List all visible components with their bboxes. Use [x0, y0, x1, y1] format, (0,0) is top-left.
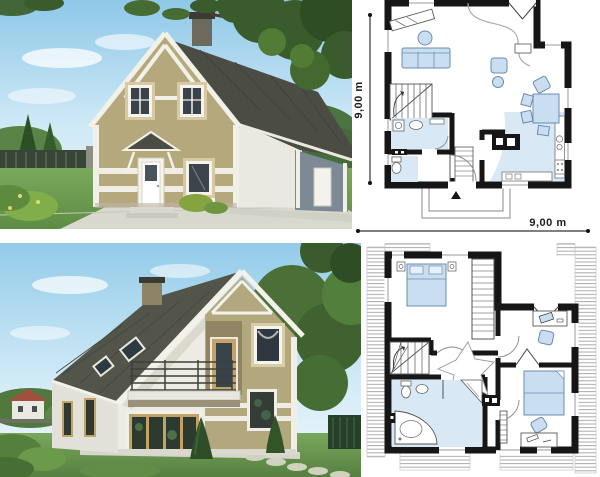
- staircase: [390, 84, 432, 120]
- chair: [521, 110, 533, 123]
- distant-house: [12, 401, 44, 419]
- ground-floor-glazing: [126, 411, 202, 455]
- ground-floor-plan-svg: 9,00 m 9,00 m: [352, 0, 600, 239]
- wardrobe: [472, 259, 494, 339]
- pouf: [493, 77, 504, 88]
- dimension-vertical: 9,00 m: [353, 13, 372, 185]
- washing-machine: [393, 120, 404, 131]
- photo-house-garden: [0, 243, 361, 477]
- annex-door: [314, 168, 331, 206]
- porch-post: [296, 150, 300, 208]
- front-door: [138, 158, 164, 207]
- kitchen-sink: [556, 136, 562, 142]
- door-steps: [130, 207, 174, 213]
- desk: [521, 433, 557, 447]
- photo-house-front-svg: [0, 0, 352, 229]
- balcony-door: [210, 337, 238, 393]
- facade-stripe: [95, 186, 237, 192]
- upper-floor-plan: [361, 243, 600, 477]
- house-project-collage: 9,00 m 9,00 m: [0, 0, 600, 477]
- bathroom: [391, 118, 448, 149]
- pillow: [429, 266, 442, 274]
- coffee-table: [418, 31, 432, 45]
- upper-window-left: [125, 82, 155, 120]
- toilet: [402, 386, 411, 398]
- dimension-horizontal: 9,00 m: [356, 217, 590, 233]
- radiator: [392, 149, 407, 155]
- sink: [416, 385, 428, 394]
- porch-post: [343, 163, 347, 212]
- wardrobe: [500, 411, 507, 443]
- dimension-label-width: 9,00 m: [529, 217, 566, 229]
- chair: [537, 125, 549, 135]
- desk-chair: [538, 330, 554, 346]
- photo-house-front: [0, 0, 352, 229]
- facade-stripe: [95, 168, 237, 174]
- dining-table: [533, 94, 559, 123]
- chair: [521, 94, 534, 107]
- dimension-label-depth: 9,00 m: [353, 81, 365, 118]
- entry-porch: [422, 185, 510, 218]
- toilet: [392, 163, 401, 174]
- sofa: [402, 48, 450, 68]
- pillow: [410, 266, 423, 274]
- nightstand: [397, 262, 405, 271]
- ground-floor-plan: 9,00 m 9,00 m: [352, 0, 600, 239]
- upper-gable-window: [251, 323, 285, 367]
- nightstand: [448, 262, 456, 271]
- balcony-slab: [128, 391, 240, 400]
- chimney-cap: [139, 277, 165, 283]
- upper-floor-plan-svg: [361, 243, 600, 477]
- chimney: [192, 16, 212, 46]
- staircase: [390, 342, 429, 374]
- sink: [410, 121, 423, 130]
- bathroom: [389, 380, 483, 447]
- photo-house-garden-svg: [0, 243, 361, 477]
- chimney: [142, 281, 162, 305]
- upper-window-right: [177, 82, 207, 120]
- tv-cabinet: [515, 44, 531, 53]
- entry-arrow: [451, 191, 461, 199]
- armchair: [491, 58, 507, 73]
- right-fence: [328, 415, 361, 449]
- flue-block: [482, 395, 500, 406]
- front-wall: [95, 125, 237, 207]
- stove: [555, 160, 565, 174]
